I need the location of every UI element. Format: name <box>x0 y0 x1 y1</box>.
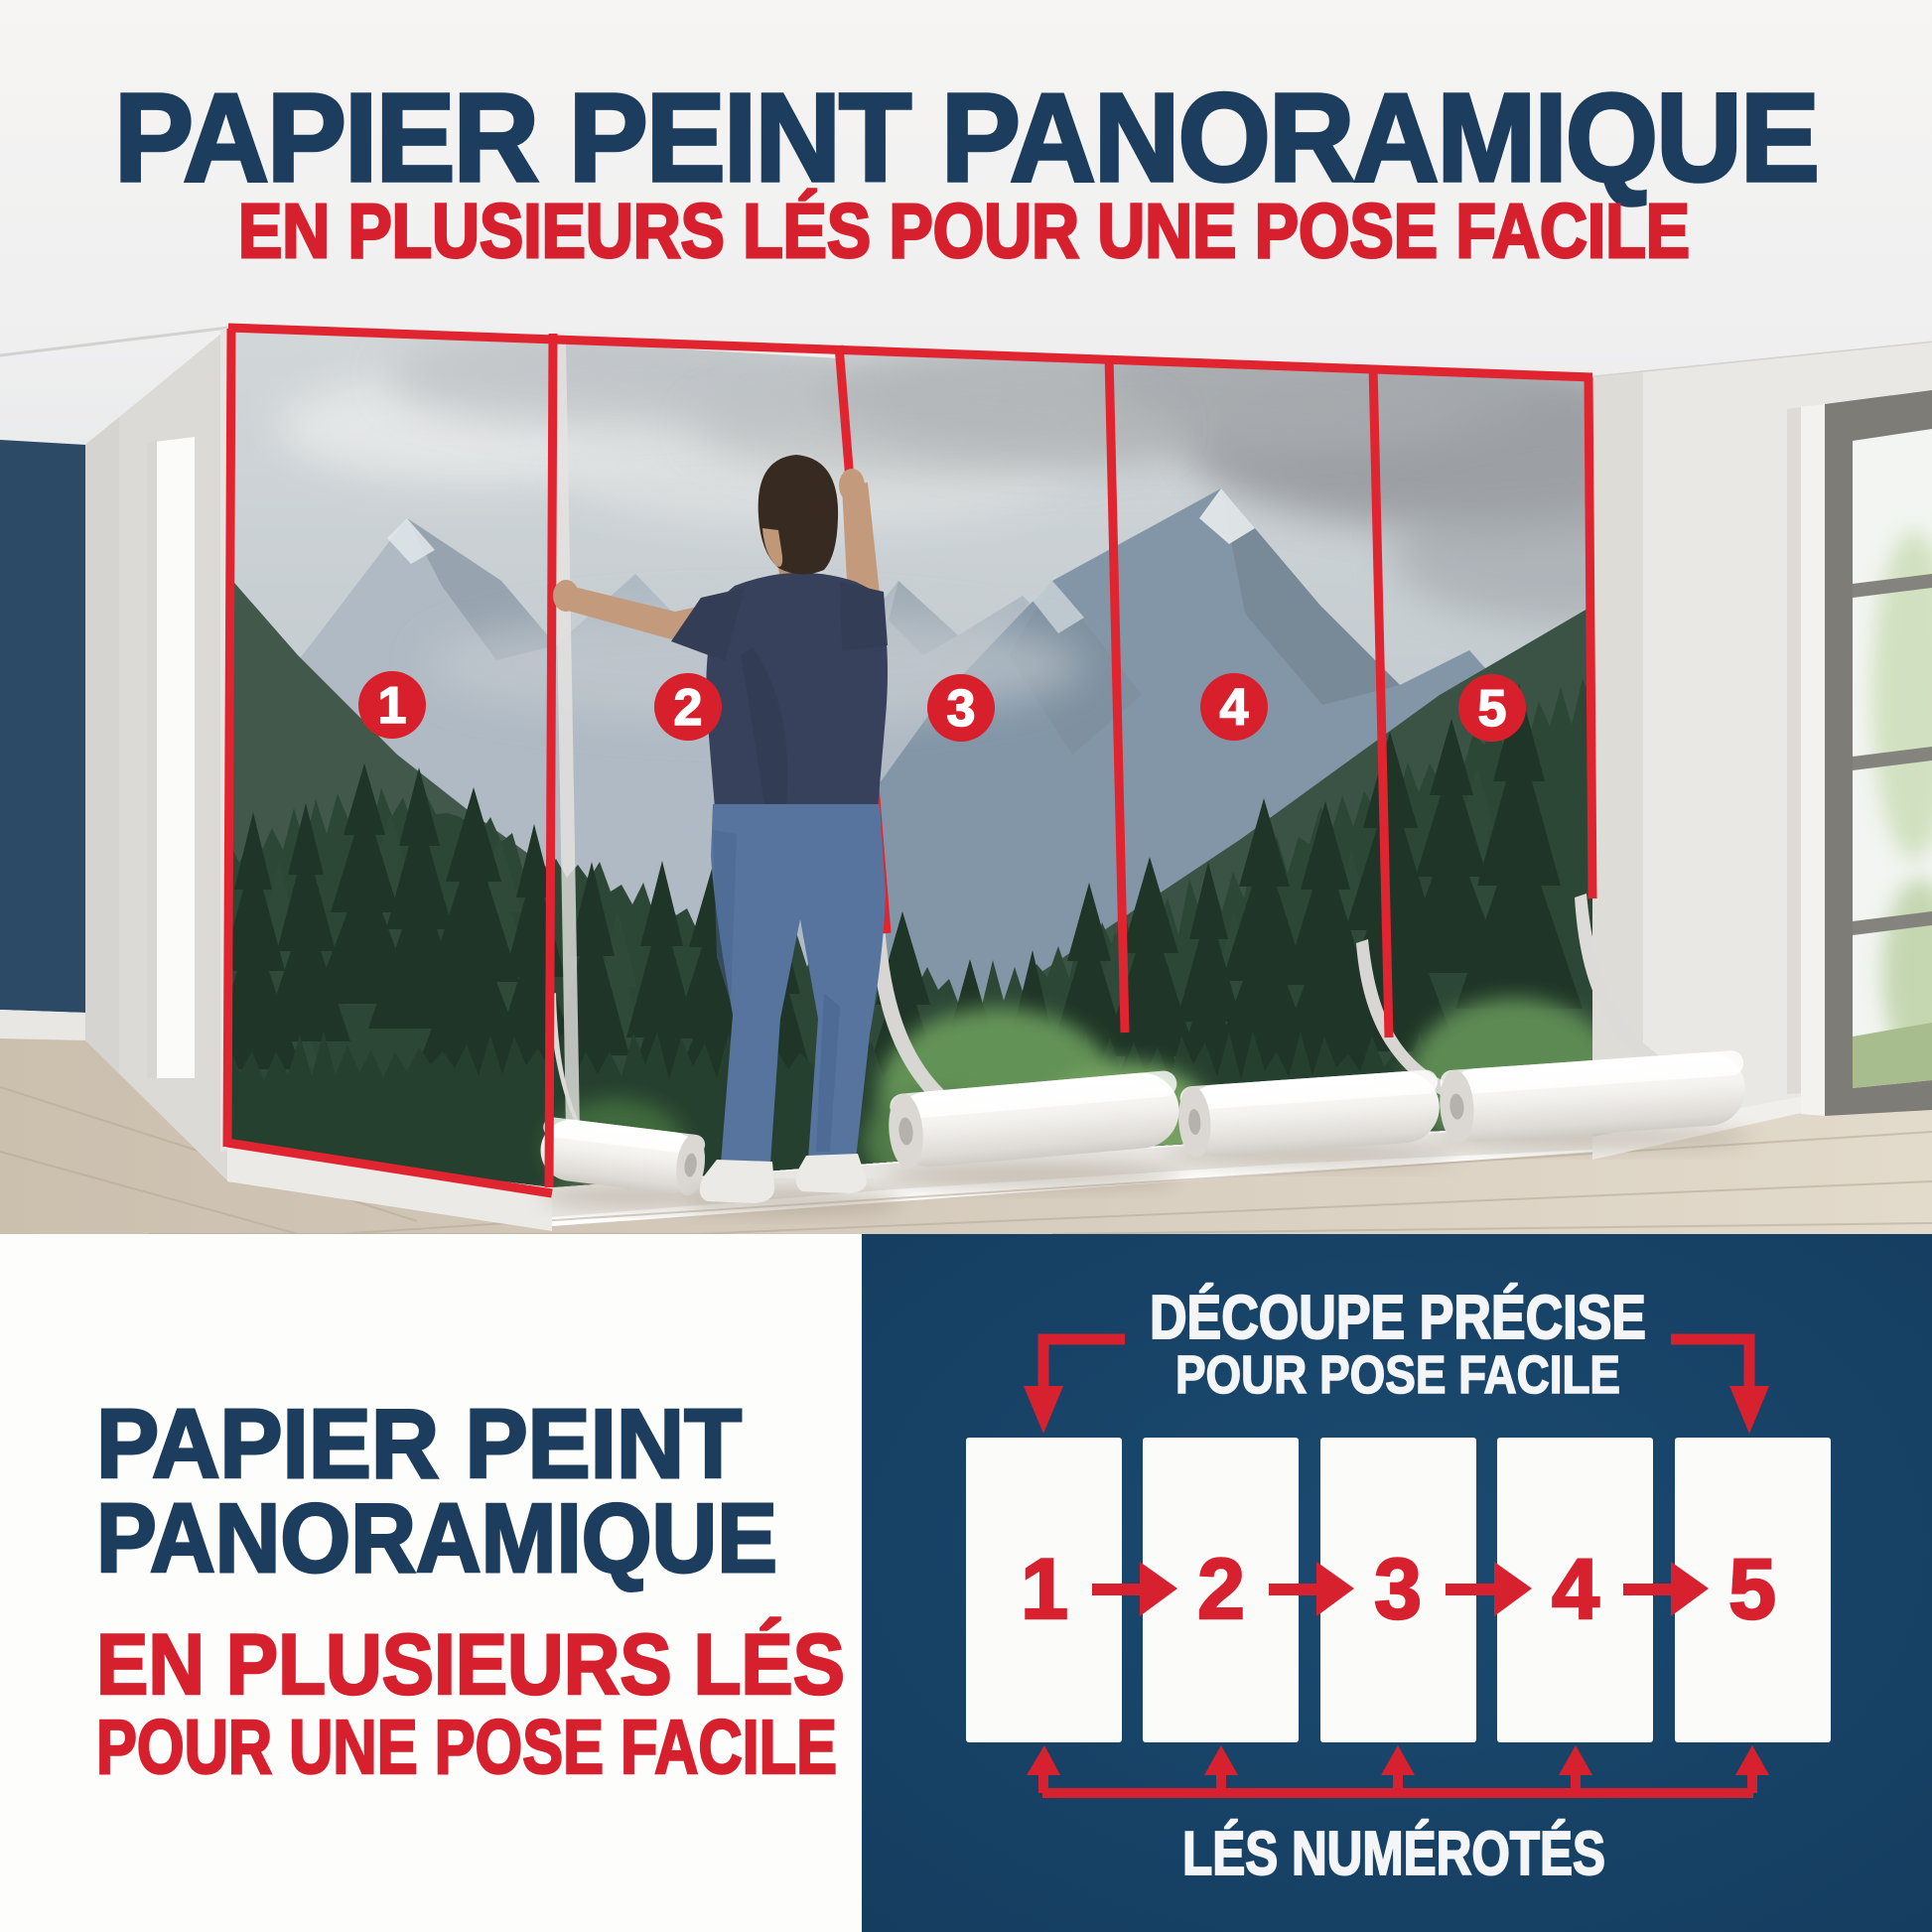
svg-text:PANORAMIQUE: PANORAMIQUE <box>96 1483 777 1592</box>
svg-text:PAPIER PEINT: PAPIER PEINT <box>96 1389 742 1498</box>
svg-text:5: 5 <box>1728 1542 1776 1637</box>
svg-text:1: 1 <box>378 677 407 735</box>
svg-text:1: 1 <box>1021 1542 1068 1637</box>
svg-text:2: 2 <box>1197 1542 1245 1637</box>
svg-text:5: 5 <box>1478 680 1507 738</box>
svg-text:DÉCOUPE PRÉCISE: DÉCOUPE PRÉCISE <box>1150 1284 1646 1352</box>
svg-text:4: 4 <box>1220 679 1249 737</box>
svg-text:PAPIER PEINT PANORAMIQUE: PAPIER PEINT PANORAMIQUE <box>114 68 1818 207</box>
svg-text:3: 3 <box>947 680 976 738</box>
svg-text:LÉS NUMÉROTÉS: LÉS NUMÉROTÉS <box>1182 1820 1605 1888</box>
svg-text:EN PLUSIEURS LÉS: EN PLUSIEURS LÉS <box>96 1617 845 1713</box>
svg-text:4: 4 <box>1552 1542 1599 1637</box>
svg-text:3: 3 <box>1374 1542 1422 1637</box>
svg-text:EN PLUSIEURS LÉS POUR UNE POSE: EN PLUSIEURS LÉS POUR UNE POSE FACILE <box>238 189 1690 274</box>
svg-text:2: 2 <box>674 679 703 737</box>
svg-text:POUR UNE POSE FACILE: POUR UNE POSE FACILE <box>96 1705 837 1790</box>
svg-text:POUR POSE FACILE: POUR POSE FACILE <box>1175 1345 1620 1405</box>
